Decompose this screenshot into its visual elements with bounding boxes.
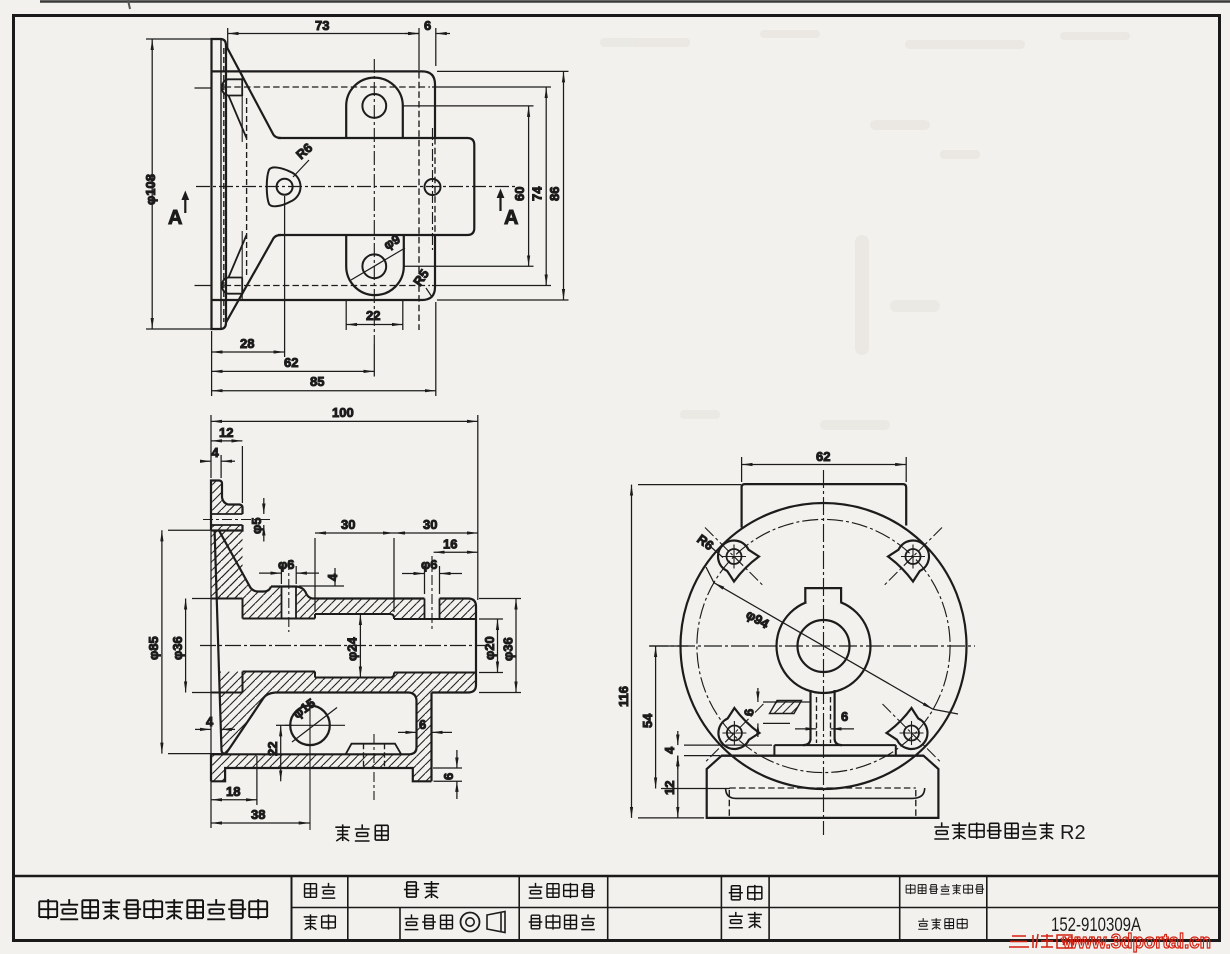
svg-text:28: 28 (240, 336, 254, 351)
svg-text:12: 12 (219, 425, 233, 440)
svg-text:φ36: φ36 (501, 637, 516, 661)
svg-text:φ6: φ6 (278, 557, 295, 572)
svg-text:www.3dportal.cn: www.3dportal.cn (1062, 931, 1211, 953)
svg-text:74: 74 (530, 186, 545, 201)
svg-text:30: 30 (341, 517, 355, 532)
svg-text:12: 12 (662, 781, 677, 795)
svg-text:6: 6 (841, 709, 848, 724)
svg-text:6: 6 (742, 709, 757, 716)
svg-text:A: A (168, 207, 182, 229)
svg-text:60: 60 (512, 187, 527, 201)
svg-text:A: A (504, 207, 518, 229)
svg-text:18: 18 (226, 784, 240, 799)
svg-text:62: 62 (816, 449, 830, 464)
svg-text:6: 6 (424, 18, 431, 33)
svg-text:φ108: φ108 (143, 174, 158, 205)
svg-text:116: 116 (616, 686, 631, 707)
svg-text:30: 30 (423, 517, 437, 532)
svg-text:38: 38 (251, 807, 265, 822)
svg-text:86: 86 (547, 187, 562, 201)
svg-text:6: 6 (441, 773, 456, 780)
svg-text:22: 22 (366, 308, 380, 323)
svg-text:φ24: φ24 (345, 636, 360, 661)
svg-text:R6: R6 (694, 531, 716, 553)
svg-text:100: 100 (332, 405, 354, 420)
svg-text:φ94: φ94 (744, 607, 773, 632)
svg-text:φ6: φ6 (421, 557, 438, 572)
svg-text:22: 22 (265, 742, 280, 756)
svg-text:6: 6 (419, 717, 426, 732)
svg-text:φ36: φ36 (170, 636, 185, 660)
svg-text:73: 73 (315, 18, 329, 33)
svg-text:φ5: φ5 (249, 517, 264, 534)
svg-text:4: 4 (662, 746, 677, 754)
svg-text:R6: R6 (293, 140, 315, 162)
svg-text:φ15: φ15 (290, 695, 318, 721)
svg-text:62: 62 (284, 355, 298, 370)
svg-text:φ85: φ85 (146, 636, 161, 660)
svg-text:φ20: φ20 (482, 636, 497, 660)
svg-text:16: 16 (443, 537, 457, 552)
svg-text:4: 4 (212, 445, 220, 460)
svg-text:R2: R2 (1060, 822, 1086, 844)
svg-text:85: 85 (310, 374, 324, 389)
svg-text:4: 4 (206, 714, 214, 729)
svg-text:54: 54 (640, 713, 655, 728)
svg-text:4: 4 (325, 573, 340, 581)
